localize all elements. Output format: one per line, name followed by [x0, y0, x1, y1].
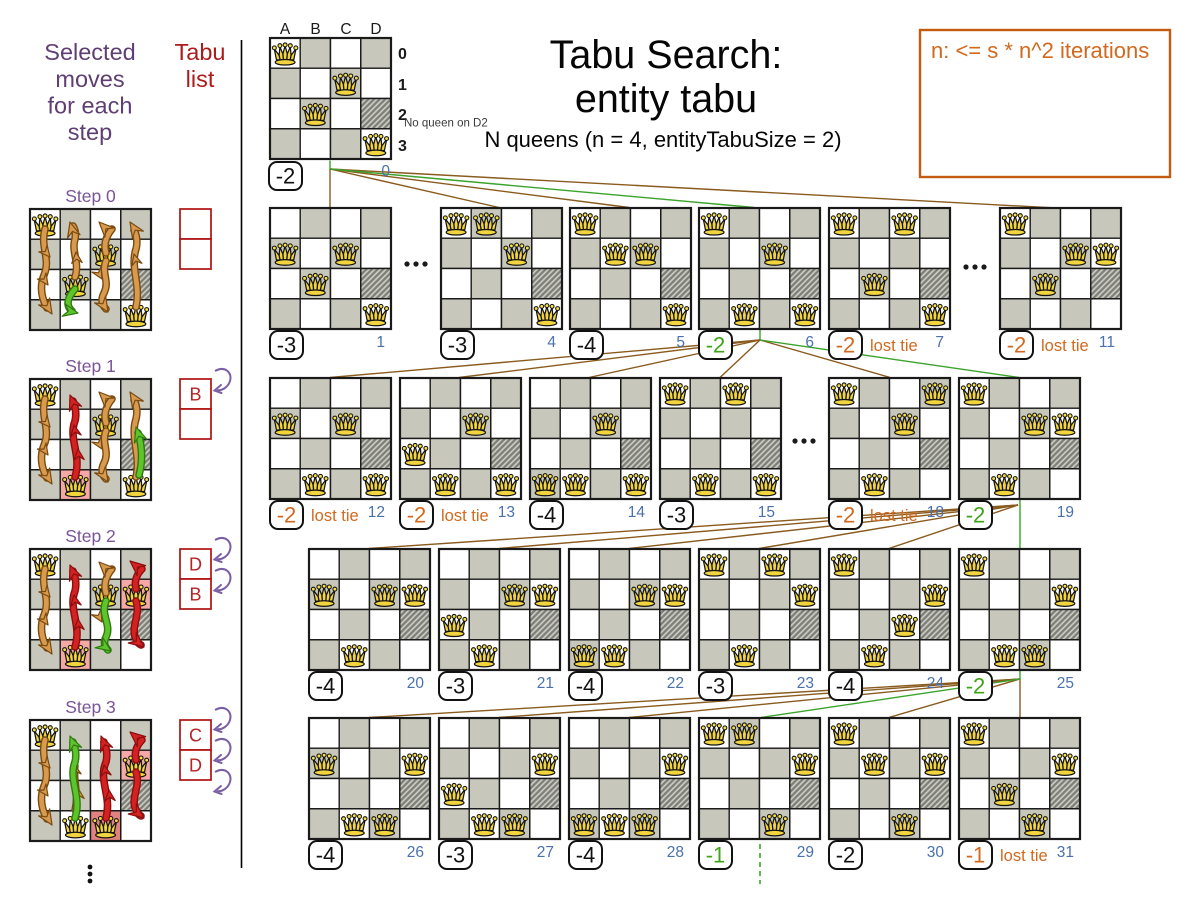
svg-text:-3: -3 [277, 333, 297, 358]
svg-text:D: D [189, 555, 202, 575]
svg-text:31: 31 [1057, 844, 1074, 861]
svg-text:-1: -1 [966, 843, 986, 868]
svg-text:-4: -4 [576, 843, 596, 868]
svg-text:-2: -2 [1007, 333, 1027, 358]
svg-text:29: 29 [797, 844, 814, 861]
svg-text:-2: -2 [276, 164, 296, 189]
svg-text:18: 18 [927, 504, 944, 521]
svg-text:25: 25 [1057, 675, 1074, 692]
svg-text:-4: -4 [316, 843, 336, 868]
svg-text:0: 0 [398, 46, 407, 63]
svg-text:-2: -2 [966, 674, 986, 699]
svg-text:list: list [186, 66, 215, 92]
svg-text:28: 28 [667, 844, 684, 861]
svg-text:B: B [310, 21, 320, 38]
svg-text:-4: -4 [316, 674, 336, 699]
svg-text:N queens (n = 4, entityTabuSiz: N queens (n = 4, entityTabuSize = 2) [484, 127, 841, 152]
svg-text:-3: -3 [706, 674, 726, 699]
svg-text:Selected: Selected [44, 39, 135, 65]
svg-text:Tabu Search:: Tabu Search: [550, 33, 783, 77]
svg-text:n: <= s * n^2 iterations: n: <= s * n^2 iterations [931, 38, 1149, 63]
svg-text:7: 7 [935, 334, 944, 351]
svg-text:-3: -3 [448, 333, 468, 358]
svg-text:13: 13 [498, 504, 515, 521]
svg-text:No queen on D2: No queen on D2 [404, 118, 488, 130]
svg-text:6: 6 [805, 334, 814, 351]
svg-text:23: 23 [797, 675, 814, 692]
svg-text:Step 0: Step 0 [65, 186, 116, 206]
svg-text:1: 1 [398, 77, 407, 94]
svg-text:C: C [340, 21, 351, 38]
svg-text:-2: -2 [407, 503, 427, 528]
svg-text:-1: -1 [706, 843, 726, 868]
svg-text:11: 11 [1099, 334, 1115, 351]
svg-text:B: B [189, 585, 201, 605]
svg-text:-2: -2 [836, 503, 856, 528]
svg-text:-2: -2 [836, 843, 856, 868]
svg-text:20: 20 [407, 675, 425, 692]
svg-text:22: 22 [667, 675, 684, 692]
svg-text:lost tie: lost tie [1041, 337, 1089, 355]
svg-text:A: A [280, 21, 291, 38]
svg-text:-4: -4 [576, 674, 596, 699]
svg-text:-2: -2 [277, 503, 297, 528]
svg-text:D: D [370, 21, 381, 38]
svg-text:lost tie: lost tie [441, 507, 489, 525]
svg-text:27: 27 [537, 844, 554, 861]
svg-text:-3: -3 [446, 674, 466, 699]
svg-text:4: 4 [547, 334, 556, 351]
svg-text:Tabu: Tabu [175, 39, 226, 65]
svg-text:-3: -3 [667, 503, 687, 528]
svg-text:for each: for each [48, 93, 133, 119]
svg-text:15: 15 [758, 504, 775, 521]
svg-text:entity tabu: entity tabu [575, 77, 757, 121]
svg-text:B: B [189, 385, 201, 405]
svg-text:-3: -3 [446, 843, 466, 868]
svg-text:21: 21 [537, 675, 554, 692]
svg-text:Step 3: Step 3 [65, 697, 116, 717]
svg-text:-4: -4 [836, 674, 856, 699]
svg-text:-2: -2 [966, 503, 986, 528]
svg-text:lost tie: lost tie [311, 507, 359, 525]
svg-text:24: 24 [927, 675, 945, 692]
svg-text:1: 1 [376, 334, 385, 351]
svg-text:19: 19 [1057, 504, 1074, 521]
svg-text:lost tie: lost tie [1000, 847, 1048, 865]
svg-text:5: 5 [676, 334, 685, 351]
svg-text:3: 3 [398, 138, 407, 155]
svg-text:moves: moves [55, 66, 124, 92]
svg-text:26: 26 [407, 844, 424, 861]
svg-text:D: D [189, 756, 202, 776]
svg-text:12: 12 [368, 504, 385, 521]
svg-text:lost tie: lost tie [870, 507, 918, 525]
svg-text:0: 0 [381, 163, 390, 180]
svg-text:-2: -2 [836, 333, 856, 358]
svg-text:lost tie: lost tie [870, 337, 918, 355]
svg-text:Step 1: Step 1 [65, 356, 116, 376]
svg-text:C: C [189, 726, 202, 746]
svg-text:Step 2: Step 2 [65, 526, 116, 546]
svg-text:-2: -2 [706, 333, 726, 358]
svg-text:step: step [68, 119, 112, 145]
svg-text:-4: -4 [577, 333, 597, 358]
svg-text:-4: -4 [537, 503, 557, 528]
svg-text:14: 14 [628, 504, 646, 521]
svg-text:30: 30 [927, 844, 945, 861]
